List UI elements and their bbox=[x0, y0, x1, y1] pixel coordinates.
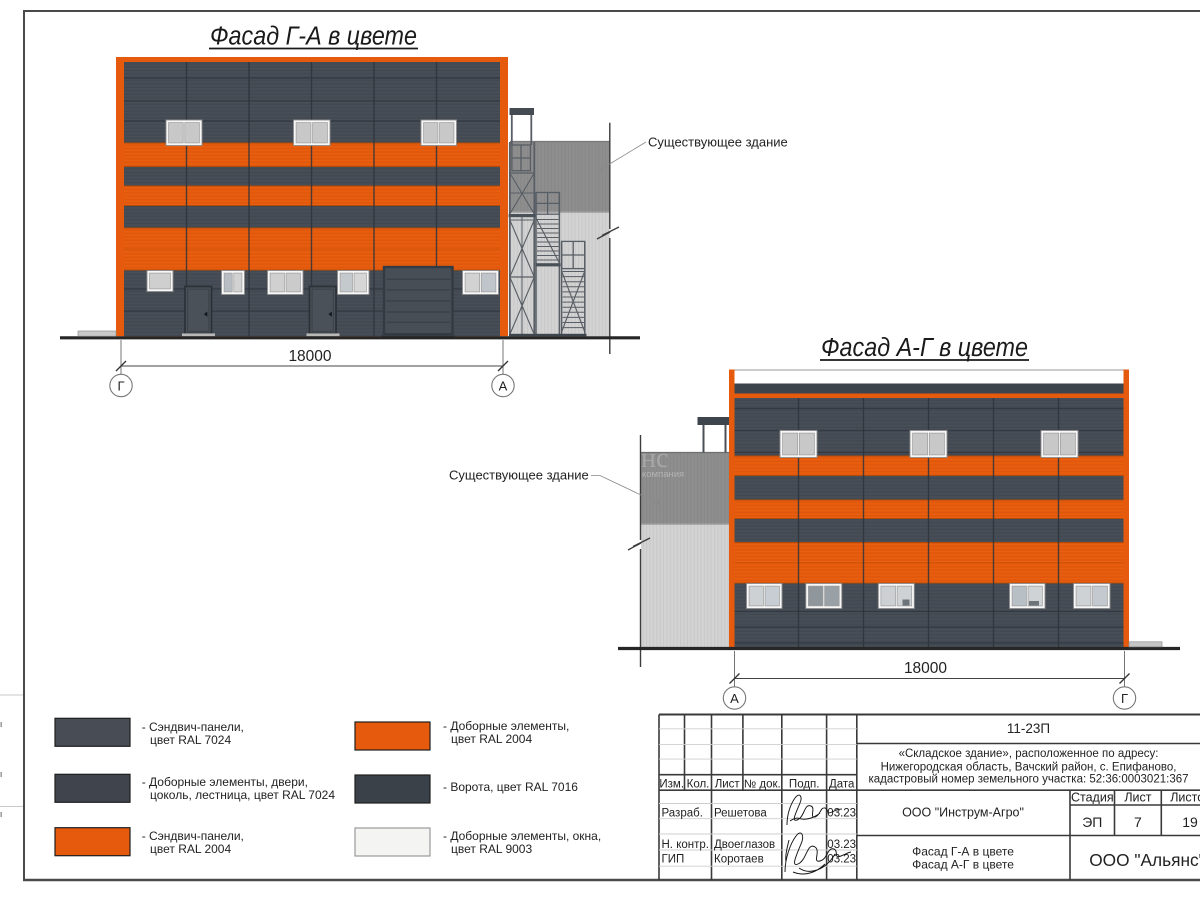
svg-text:Листов: Листов bbox=[1170, 791, 1200, 805]
svg-text:18000: 18000 bbox=[288, 348, 331, 365]
svg-text:Двоеглазов: Двоеглазов bbox=[714, 839, 775, 851]
svg-text:Фасад А-Г в цвете: Фасад А-Г в цвете bbox=[912, 858, 1014, 872]
svg-text:- Доборные элементы,: - Доборные элементы, bbox=[443, 719, 569, 733]
svg-text:ЭП: ЭП bbox=[1082, 814, 1102, 830]
svg-text:7: 7 bbox=[1134, 814, 1142, 830]
svg-text:Существующее здание: Существующее здание bbox=[648, 135, 788, 150]
svg-text:цвет RAL 2004: цвет RAL 2004 bbox=[451, 732, 532, 746]
svg-text:Решетова: Решетова bbox=[714, 808, 767, 820]
svg-text:- Сэндвич-панели,: - Сэндвич-панели, bbox=[142, 720, 244, 734]
svg-text:цвет RAL 2004: цвет RAL 2004 bbox=[150, 842, 231, 856]
svg-text:Подп.: Подп. bbox=[789, 779, 820, 791]
svg-text:компания: компания bbox=[642, 469, 684, 480]
svg-text:Н. контр.: Н. контр. bbox=[662, 839, 709, 851]
svg-text:Лист: Лист bbox=[1124, 791, 1151, 805]
svg-text:- Ворота, цвет RAL 7016: - Ворота, цвет RAL 7016 bbox=[443, 780, 578, 794]
svg-text:- Доборные элементы, окна,: - Доборные элементы, окна, bbox=[443, 829, 601, 843]
svg-text:Г: Г bbox=[117, 379, 124, 394]
svg-text:Стадия: Стадия bbox=[1071, 791, 1114, 805]
svg-text:Существующее здание: Существующее здание bbox=[449, 468, 589, 483]
svg-text:11-23П: 11-23П bbox=[1007, 721, 1050, 736]
svg-text:Нижегородская область, Вачский: Нижегородская область, Вачский район, с.… bbox=[881, 762, 1177, 774]
svg-text:А: А bbox=[499, 379, 508, 394]
svg-text:Разраб.: Разраб. bbox=[662, 808, 703, 820]
svg-text:Г: Г bbox=[1121, 691, 1128, 706]
svg-text:18000: 18000 bbox=[904, 660, 947, 677]
svg-text:№ док.: № док. bbox=[744, 779, 781, 791]
svg-text:Фасад А-Г в цвете: Фасад А-Г в цвете bbox=[821, 334, 1028, 362]
svg-text:А: А bbox=[730, 691, 739, 706]
svg-text:Изм.: Изм. bbox=[659, 779, 684, 791]
svg-text:цвет RAL 9003: цвет RAL 9003 bbox=[451, 842, 532, 856]
svg-text:Фасад Г-А в цвете: Фасад Г-А в цвете bbox=[912, 845, 1014, 859]
svg-text:- Доборные элементы, двери,: - Доборные элементы, двери, bbox=[142, 775, 308, 789]
svg-text:Фасад Г-А в цвете: Фасад Г-А в цвете bbox=[210, 23, 417, 51]
svg-text:- Сэндвич-панели,: - Сэндвич-панели, bbox=[142, 829, 244, 843]
svg-text:Дата: Дата bbox=[829, 779, 855, 791]
svg-text:Кол.: Кол. bbox=[687, 779, 710, 791]
svg-text:кадастровый номер земельного у: кадастровый номер земельного участка: 52… bbox=[868, 774, 1188, 786]
svg-text:19: 19 bbox=[1182, 814, 1198, 830]
svg-text:«Складское здание», расположен: «Складское здание», расположенное по адр… bbox=[899, 748, 1159, 760]
svg-text:ООО "Альянс": ООО "Альянс" bbox=[1089, 850, 1200, 870]
svg-text:Коротаев: Коротаев bbox=[714, 854, 764, 866]
svg-text:цоколь, лестница, цвет RAL 702: цоколь, лестница, цвет RAL 7024 bbox=[150, 788, 335, 802]
svg-text:цвет RAL 7024: цвет RAL 7024 bbox=[150, 733, 231, 747]
svg-text:Лист: Лист bbox=[715, 779, 741, 791]
svg-text:ГИП: ГИП bbox=[662, 854, 685, 866]
svg-text:ООО "Инструм-Агро": ООО "Инструм-Агро" bbox=[902, 806, 1024, 820]
